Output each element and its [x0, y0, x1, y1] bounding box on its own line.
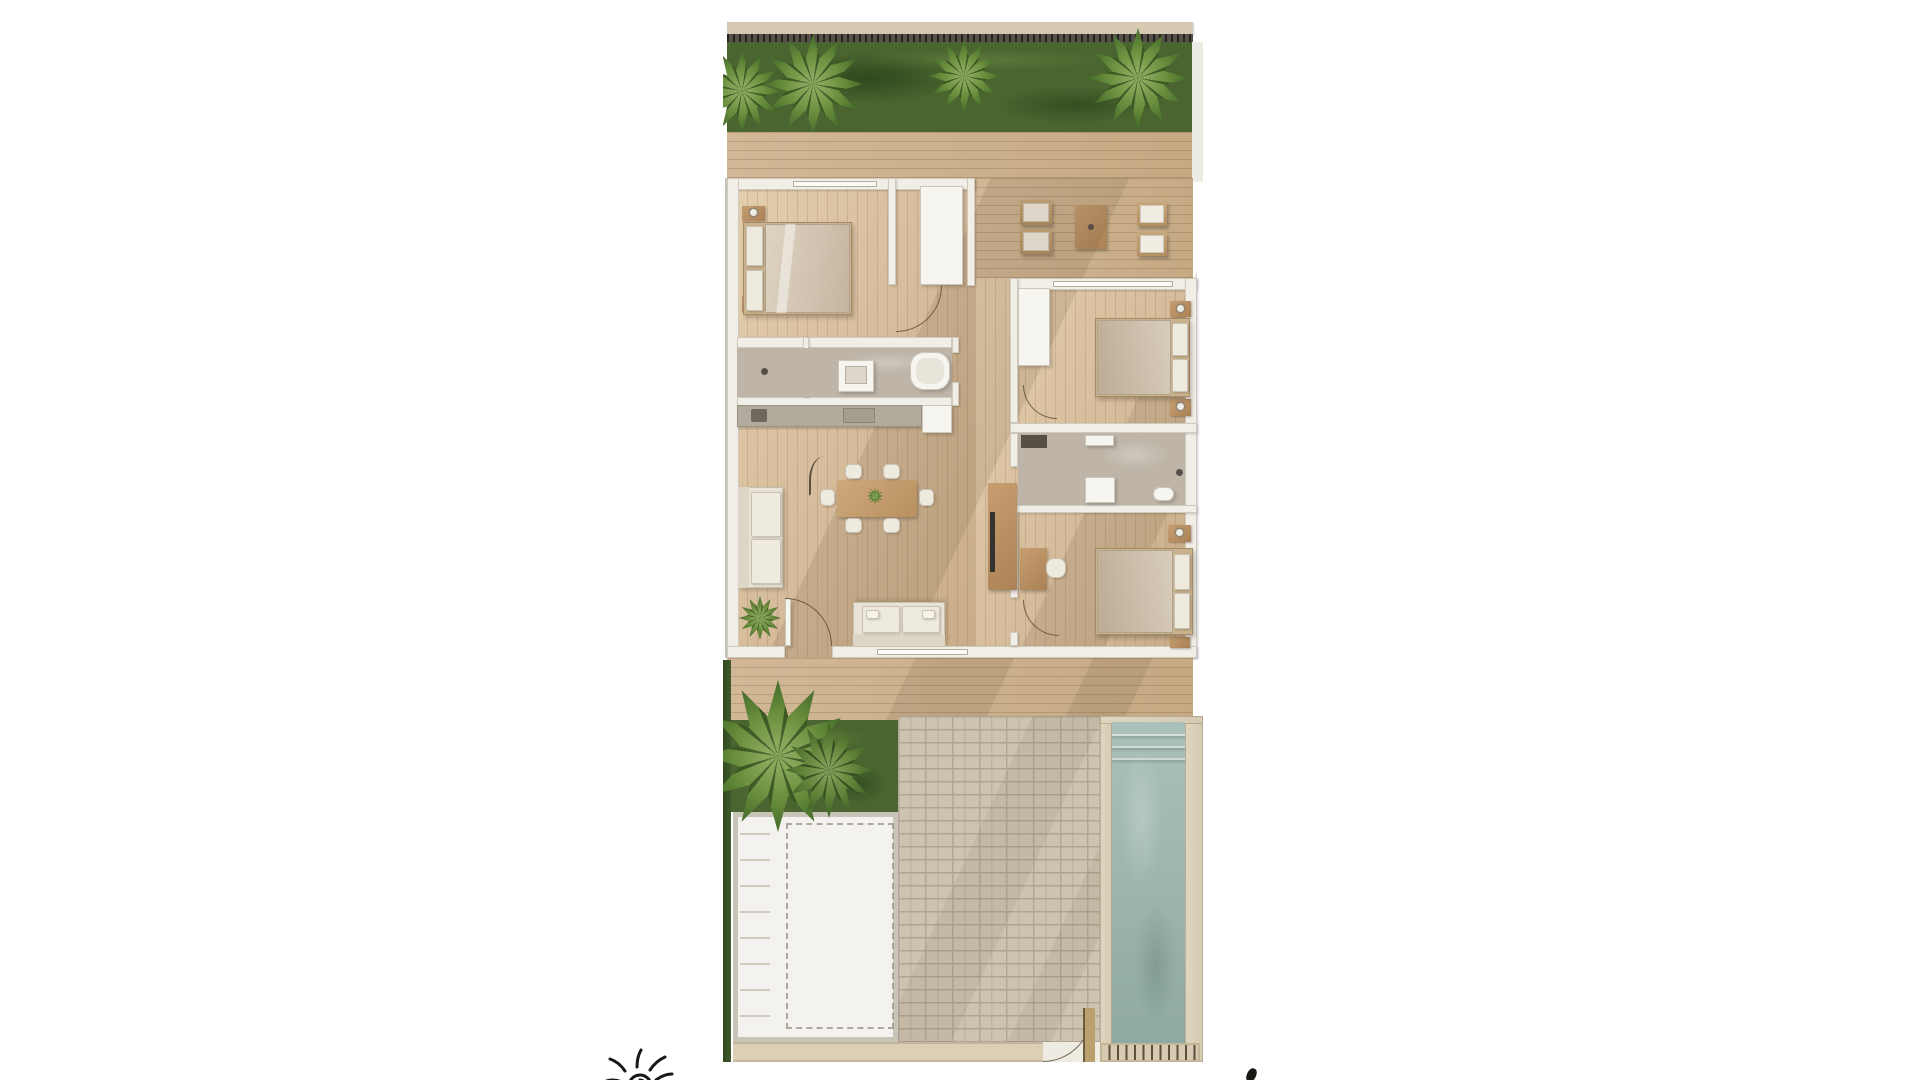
wall-bedroom1-right: [888, 178, 896, 285]
table-item: [1088, 224, 1094, 230]
sofa-backrest: [738, 487, 749, 588]
pool-step: [1112, 758, 1185, 760]
lounge-chair: [1020, 229, 1052, 254]
pool-step: [1112, 734, 1185, 736]
floorplan-render: [723, 20, 1203, 1065]
sofa-cushion: [751, 492, 781, 537]
living-room-window: [877, 649, 968, 655]
page: [0, 0, 1920, 1080]
hedge-left: [723, 660, 731, 1062]
bed3-pillow: [1174, 554, 1190, 590]
shower-head-icon: [1176, 469, 1183, 476]
bedroom3-desk: [1020, 548, 1047, 590]
wall-outer-bottom-a: [727, 646, 785, 658]
pool-coping-left: [1100, 716, 1112, 1062]
shower-head-icon: [761, 368, 768, 375]
bed1-pillow: [746, 226, 763, 266]
hedge-fence-top: [727, 34, 1193, 42]
bed2-pillow: [1172, 359, 1188, 392]
toilet: [1153, 487, 1174, 501]
parking-space-marking: [786, 823, 894, 1029]
bedside-lamp-icon: [1176, 529, 1183, 536]
bathtub-basin: [916, 358, 944, 384]
tv-screen: [990, 512, 995, 572]
wall-bathroom1-right-b: [952, 382, 959, 406]
swimming-pool-water: [1112, 722, 1185, 1043]
bedroom2-closet: [1018, 288, 1050, 366]
pool-coping-right: [1185, 716, 1203, 1062]
wall-bedroom2-left: [1010, 278, 1018, 423]
dining-chair: [883, 518, 900, 533]
side-steps: [740, 833, 770, 1029]
lounge-chair: [1137, 202, 1167, 226]
bed1-pillow: [746, 270, 763, 311]
bathroom2-shelf: [1085, 435, 1114, 446]
dining-chair: [845, 464, 862, 479]
bed2-duvet: [1097, 320, 1171, 395]
parking-pad: [733, 812, 898, 1042]
brick-driveway: [898, 716, 1100, 1042]
pool-step: [1112, 746, 1185, 748]
side-wall-right-strip: [1192, 42, 1203, 182]
bed3-pillow: [1174, 593, 1190, 629]
gate-post: [1083, 1008, 1095, 1062]
bedside-lamp-icon: [1177, 403, 1184, 410]
throw-pillow: [866, 610, 879, 619]
dining-chair: [883, 464, 900, 479]
sofa-cushion: [751, 539, 781, 584]
bedside-lamp-icon: [1177, 305, 1184, 312]
kitchen-tall-cabinet: [922, 405, 952, 433]
throw-pillow: [922, 610, 935, 619]
wall-bathroom2-left-a: [1010, 433, 1018, 467]
bathroom2-sink: [1085, 477, 1115, 503]
lounge-chair: [1137, 232, 1167, 256]
wall-bedroom2-bottom: [1010, 423, 1197, 433]
threshold-sill: [733, 1042, 1043, 1062]
deck-top: [727, 132, 1192, 178]
laundry-counter: [1021, 435, 1047, 448]
wall-bedroom3-left-b: [1010, 632, 1018, 646]
loveseat-backrest: [853, 634, 945, 646]
ink-mark: [1244, 1067, 1258, 1080]
bed3-duvet: [1097, 550, 1173, 633]
bedroom1-sliding-window: [793, 181, 877, 187]
wall-bathroom1-top: [737, 337, 952, 348]
dining-chair: [919, 489, 934, 506]
bedside-lamp-icon: [750, 209, 757, 216]
cooktop: [843, 408, 875, 423]
dining-chair: [845, 518, 862, 533]
wall-bathroom1-right-a: [952, 337, 959, 353]
kitchen-sink: [751, 409, 767, 422]
wall-bathroom2-bottom: [1010, 505, 1197, 513]
sun-doodle-icon: [592, 1040, 684, 1080]
vanity-sink-basin: [845, 366, 867, 384]
bed2-pillow: [1172, 323, 1188, 356]
dining-chair: [820, 489, 835, 506]
bedroom2-sliding-door: [1053, 281, 1173, 287]
pool-drain-grate: [1100, 1043, 1200, 1062]
nightstand: [1170, 637, 1190, 648]
wall-patio-corner: [967, 178, 975, 286]
bedroom1-walk-in-closet: [920, 186, 963, 285]
lounge-chair: [1020, 200, 1052, 225]
desk-chair: [1046, 558, 1066, 578]
